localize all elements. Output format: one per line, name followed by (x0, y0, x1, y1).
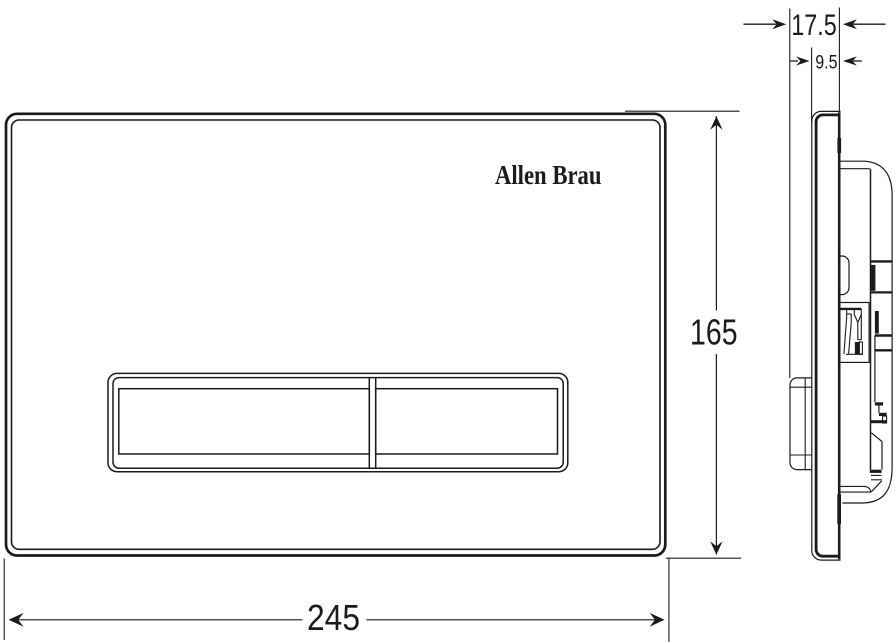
svg-text:Allen Brau: Allen Brau (495, 160, 602, 190)
svg-text:245: 245 (307, 597, 360, 638)
svg-text:9.5: 9.5 (815, 53, 837, 74)
svg-text:165: 165 (690, 311, 738, 352)
svg-text:17.5: 17.5 (791, 9, 837, 42)
